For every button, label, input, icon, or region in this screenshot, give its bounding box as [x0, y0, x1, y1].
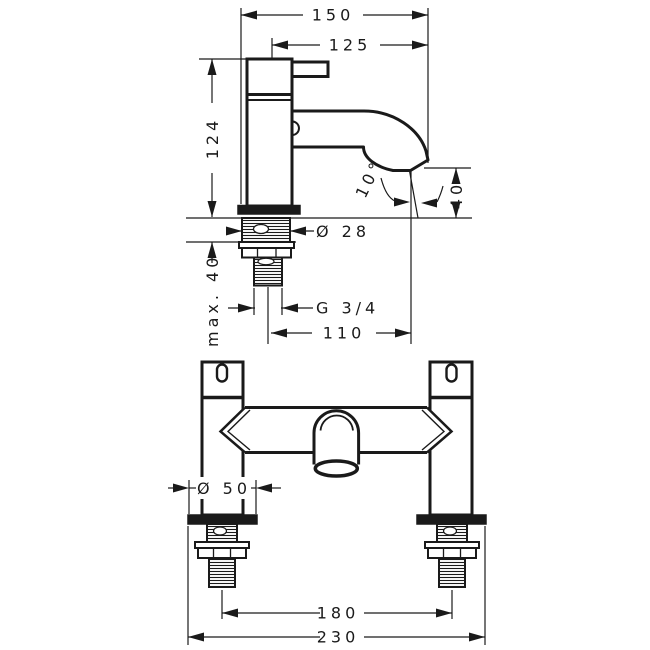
shank-nut-side [242, 248, 291, 258]
side-view-dimension-labels: 150 125 124 10° 40 Ø 28 max. 40 G 3/4 11… [203, 6, 466, 348]
mixer-front-geometry [188, 362, 486, 587]
dim-overall-width: 230 [317, 628, 360, 647]
dim-spout-reach: 110 [323, 324, 366, 343]
dim-body-height: 124 [203, 117, 222, 160]
dim-inlet-center-distance: 180 [317, 604, 360, 623]
dim-total-projection: 150 [312, 6, 355, 25]
handle-lever-outline [292, 62, 328, 77]
dim-max-mounting-depth: max. 40 [203, 254, 222, 347]
dim-base-diameter: Ø 50 [197, 479, 251, 498]
technical-drawing: 150 125 124 10° 40 Ø 28 max. 40 G 3/4 11… [0, 0, 650, 650]
spout-outline [292, 111, 428, 171]
right-base-plate [417, 515, 486, 524]
front-view: Ø 50 180 230 [168, 362, 486, 647]
dim-spout-projection: 125 [329, 36, 372, 55]
faucet-body-outline [247, 59, 292, 206]
side-view-reference-lines [186, 8, 472, 344]
right-handle-slot [447, 365, 457, 382]
dim-spout-clearance: 40 [447, 181, 466, 209]
drawing-page: 150 125 124 10° 40 Ø 28 max. 40 G 3/4 11… [0, 0, 650, 650]
dim-connection-thread: G 3/4 [316, 299, 379, 318]
left-handle-slot [217, 365, 227, 382]
left-base-plate [188, 515, 257, 524]
spout-outlet-front [315, 461, 357, 476]
side-view: 150 125 124 10° 40 Ø 28 max. 40 G 3/4 11… [186, 6, 472, 348]
base-plate-side [238, 206, 300, 215]
faucet-side-geometry [238, 59, 428, 286]
dim-shank-diameter: Ø 28 [316, 222, 370, 241]
